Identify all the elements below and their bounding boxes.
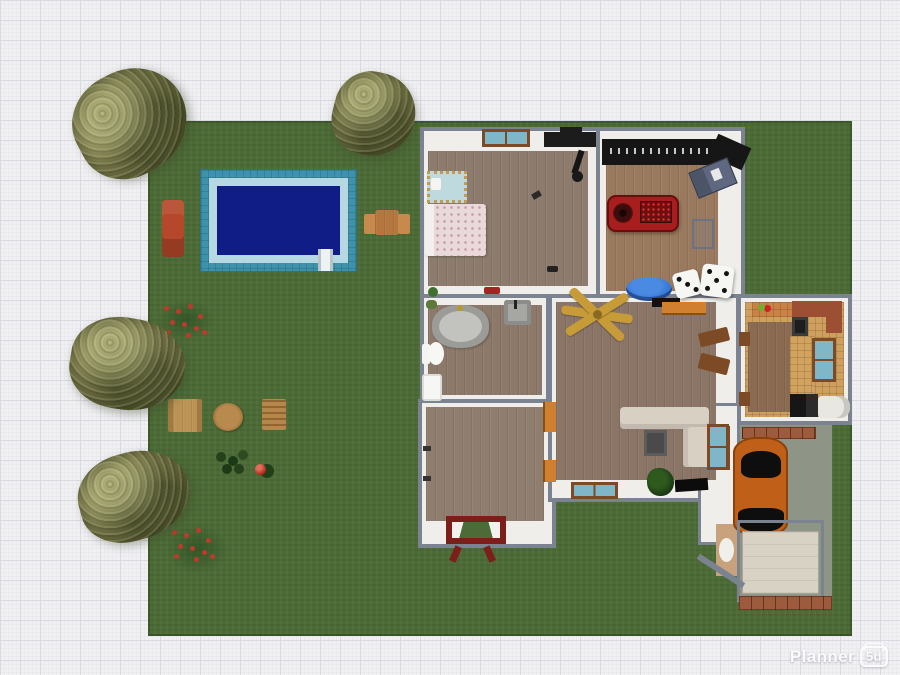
black-console-top [560, 127, 582, 134]
ceiling-fan[interactable] [556, 296, 638, 334]
black-console[interactable] [544, 132, 596, 147]
picnic-table[interactable] [168, 399, 202, 432]
bar-counter[interactable] [602, 139, 722, 165]
garage-door[interactable] [742, 531, 819, 594]
tv[interactable] [675, 478, 709, 492]
kitchen-window[interactable] [812, 338, 836, 382]
car-windshield [741, 451, 781, 478]
planner5d-logo-icon: 5d [860, 646, 888, 667]
lounge-chair[interactable] [162, 200, 184, 257]
steps-bottom [739, 596, 832, 610]
sofa-chaise[interactable] [683, 427, 710, 467]
fan-hub [593, 310, 602, 319]
folding-chair[interactable] [692, 219, 714, 249]
planner5d-watermark: Planner 5d [790, 646, 888, 667]
watermark-brand: Planner [790, 647, 855, 667]
giant-die-large[interactable] [699, 263, 735, 299]
coffee-table[interactable] [644, 430, 667, 456]
kitchen-appliance[interactable] [790, 394, 818, 417]
shower-mat[interactable] [422, 374, 442, 401]
counter-right[interactable] [826, 301, 842, 333]
living-window-right[interactable] [707, 424, 729, 470]
fruit-bowl [758, 304, 765, 311]
slippers[interactable] [484, 287, 500, 294]
patio-table[interactable] [375, 210, 399, 235]
kitchen-chair-top[interactable] [739, 332, 750, 346]
bath-sink[interactable] [504, 300, 531, 325]
stove[interactable] [792, 317, 808, 336]
round-table[interactable] [213, 403, 243, 431]
bedroom-plant[interactable] [428, 287, 438, 297]
crib-pillow [431, 178, 441, 190]
bath-plant[interactable] [426, 300, 437, 309]
toilet-bowl [428, 342, 444, 365]
dj-turntable [613, 203, 633, 223]
shrub-cluster[interactable] [216, 452, 226, 462]
kitchen-chair-bottom[interactable] [739, 392, 750, 406]
hall-shelf-lower[interactable] [543, 460, 556, 482]
bath-faucet [457, 305, 463, 311]
kitchen-sink[interactable] [818, 396, 850, 418]
bathtub-basin [439, 311, 482, 342]
rose-bush-bottom[interactable] [166, 524, 228, 574]
hall-floor [426, 407, 544, 521]
entry-porch[interactable] [446, 516, 506, 544]
patio-chair-right[interactable] [398, 214, 410, 234]
floor-item-2[interactable] [547, 266, 558, 272]
pool-ladder[interactable] [318, 249, 333, 271]
plan-canvas: Planner 5d [0, 0, 900, 675]
bath-sink-tap [514, 300, 517, 309]
pool-water [217, 186, 340, 255]
red-ball[interactable] [255, 464, 266, 475]
living-window-bottom[interactable] [571, 482, 618, 499]
bed[interactable] [425, 204, 486, 256]
bedroom-window[interactable] [482, 129, 530, 147]
water-heater-top [719, 538, 734, 562]
sofa-back[interactable] [620, 407, 709, 429]
hall-switch-1[interactable] [423, 446, 431, 451]
hall-shelf-upper[interactable] [543, 402, 556, 432]
garden-bench[interactable] [262, 399, 286, 430]
guitar-body [572, 171, 583, 182]
living-shelf[interactable] [662, 302, 706, 315]
living-plant[interactable] [647, 468, 674, 496]
dj-panel [640, 201, 672, 223]
counter-island[interactable] [790, 336, 814, 394]
hall-switch-2[interactable] [423, 476, 431, 481]
